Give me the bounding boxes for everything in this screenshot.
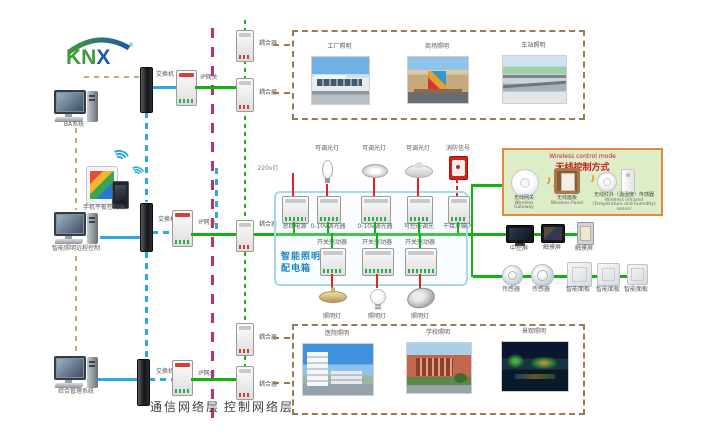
knx-logo-text-green: KN: [66, 46, 96, 69]
mobile-terminal-label: 手机平板控制端: [76, 205, 132, 212]
dry-contact-module: [448, 196, 470, 224]
wireless-sensor-label: 无线红外（温湿度）传感器Wireless infrared (Temperatu…: [591, 193, 657, 213]
ethernet-line: [100, 236, 141, 239]
mall-photo: [407, 56, 469, 104]
dimmable-lamp-icon: [362, 164, 388, 178]
scene-link-line: [273, 382, 293, 384]
management-computer: [54, 356, 100, 390]
scene-label: 景观照明: [501, 329, 567, 336]
lamp-line: [373, 178, 375, 196]
ip-gateway: [176, 70, 197, 106]
sensor-dome-icon: [531, 264, 554, 287]
wireless-gateway-label: 无线网关Wireless Gateway: [504, 196, 544, 211]
switch-actuator-module: [320, 248, 346, 276]
factory-photo: [311, 56, 370, 105]
dimmer-module: [317, 196, 341, 224]
bus-stub-line: [457, 222, 459, 233]
ethernet-line: [98, 378, 138, 381]
terminal-link-line: [75, 128, 77, 210]
knx-logo: KNX ®: [66, 34, 132, 70]
wifi-icon: [127, 164, 146, 181]
registered-mark: ®: [128, 42, 134, 49]
switch-label: 交换机: [154, 72, 176, 79]
ip-gateway: [172, 210, 193, 247]
dimmer-module: [361, 196, 391, 224]
line-coupler: [236, 366, 254, 400]
layer-label-communication: 通信网络层: [150, 398, 220, 415]
ip-gateway: [172, 360, 193, 396]
tower-icon: [87, 357, 98, 388]
touch-screen-label: 触摸屏: [575, 246, 593, 253]
dimmable-lamp-label: 可调光灯: [404, 146, 432, 153]
fire-signal-label: 消防信号: [444, 146, 472, 153]
lighting-lamp-icon: [405, 285, 437, 311]
wireless-sensor-icon: [621, 169, 635, 194]
lighting-lamp-icon: [319, 291, 347, 303]
signal-icon: [584, 173, 598, 187]
sensor-label: 传感器: [532, 287, 550, 294]
management-system-label: 综合管理系统: [42, 389, 110, 396]
lamp-label: 照明灯: [323, 314, 341, 321]
bus-stub-line: [327, 222, 329, 233]
thyristor-dimmer-module: [407, 196, 433, 224]
dimmable-lamp-icon: [322, 160, 333, 179]
scene-label: 车站照明: [502, 43, 565, 50]
knx-system-diagram: KNX ® BA系统 手机平板控制端 智能照明远程控制 综合管理系统 交换机 交…: [0, 0, 715, 443]
bus-stub-line: [293, 222, 295, 233]
power-line: [292, 173, 294, 196]
scene-label: 商场照明: [407, 44, 467, 51]
network-switch: [140, 67, 153, 113]
remote-control-label: 智能照明远程控制: [36, 246, 116, 253]
landscape-photo: [501, 341, 569, 392]
wireless-gateway-icon: [511, 169, 539, 197]
sensor-dome-icon: [502, 265, 523, 286]
touch-screen-icon: [577, 222, 594, 245]
ba-system-label: BA系统: [50, 122, 98, 129]
central-screen-label: 中控屏: [510, 246, 528, 253]
remote-control-computer: [54, 212, 100, 246]
ba-system-computer: [54, 90, 100, 124]
wireless-panel-icon: [554, 168, 580, 194]
knx-bus-line: [471, 184, 473, 277]
line-coupler: [236, 323, 254, 356]
scene-label: 工厂照明: [311, 44, 368, 51]
dimmable-lamp-label: 可调光灯: [313, 146, 341, 153]
network-switch: [137, 359, 150, 406]
scene-label: 医院照明: [302, 331, 372, 338]
touch-screen-label: 触摸屏: [543, 245, 561, 252]
touch-screen-icon: [541, 224, 565, 243]
ethernet-line: [149, 378, 173, 381]
gateway-label: IP网关: [195, 371, 219, 378]
terminal-link-line: [75, 256, 77, 354]
gateway-label: IP网关: [197, 75, 221, 82]
knx-bus-line: [552, 275, 567, 278]
lamp-label: 照明灯: [368, 314, 386, 321]
fire-alarm-icon: [449, 156, 468, 180]
sensor-label: 传感器: [502, 287, 520, 294]
knx-logo-text-blue: X: [96, 46, 110, 69]
knx-bus-line: [473, 275, 502, 278]
ethernet-line: [152, 231, 173, 234]
smart-panel-label: 智能面板: [566, 287, 590, 294]
smart-panel-label: 智能面板: [624, 287, 648, 294]
bus-stub-line: [374, 222, 376, 233]
school-photo: [406, 342, 472, 394]
terminal-link-line: [84, 76, 140, 78]
ethernet-backbone-line: [145, 112, 148, 202]
bus-stub-line: [331, 233, 333, 248]
smart-panel-label: 智能面板: [596, 287, 620, 294]
bus-stub-line: [419, 233, 421, 248]
ethernet-line: [152, 86, 176, 89]
distribution-box-title: 配电箱: [281, 261, 311, 274]
station-photo: [502, 55, 567, 104]
network-switch: [140, 203, 153, 252]
ethernet-backbone-line: [145, 252, 148, 358]
hospital-photo: [302, 343, 374, 396]
lighting-lamp-icon: [370, 289, 386, 305]
line-coupler: [236, 30, 254, 62]
central-screen-icon: [506, 225, 534, 243]
lamp-line: [419, 274, 421, 288]
lamp-line: [417, 178, 419, 196]
lamp-line: [376, 274, 378, 288]
layer-label-control: 控制网络层: [224, 398, 294, 415]
wireless-sensor-icon: [597, 172, 617, 192]
bus-power-module: [282, 196, 309, 224]
gateway-label: IP网关: [195, 220, 219, 227]
wireless-title-en: Wireless control mode: [504, 153, 661, 160]
line-coupler: [236, 78, 254, 112]
signal-icon: [540, 175, 554, 189]
bus-stub-line: [376, 233, 378, 248]
monitor-icon: [54, 356, 86, 380]
scene-link-line: [273, 44, 293, 46]
dimmable-lamp-label: 可调光灯: [360, 146, 388, 153]
switch-actuator-module: [405, 248, 437, 276]
dimmable-lamp-icon: [405, 165, 433, 178]
fire-signal-line: [456, 179, 458, 196]
lamp-label: 照明灯: [411, 314, 429, 321]
lamp-line: [326, 184, 328, 196]
scene-link-line: [273, 337, 293, 339]
knx-bus-line: [563, 233, 577, 236]
smart-panel-icon: [627, 264, 648, 285]
power-input-label: 220v灯: [246, 166, 290, 173]
scene-link-line: [273, 92, 293, 94]
switch-actuator-module: [362, 248, 394, 276]
tower-icon: [87, 213, 98, 244]
tower-icon: [87, 91, 98, 122]
wifi-icon: [108, 147, 132, 168]
smart-panel-icon: [567, 262, 592, 287]
bus-stub-line: [418, 222, 420, 233]
smart-panel-icon: [597, 263, 620, 286]
line-coupler: [236, 220, 254, 252]
wireless-panel-label: 无线面板Wireless Panel: [547, 196, 587, 206]
lamp-line: [331, 274, 333, 288]
monitor-icon: [54, 212, 86, 236]
scene-label: 学校照明: [406, 330, 470, 337]
knx-bus-line: [473, 184, 503, 187]
monitor-icon: [54, 90, 86, 114]
